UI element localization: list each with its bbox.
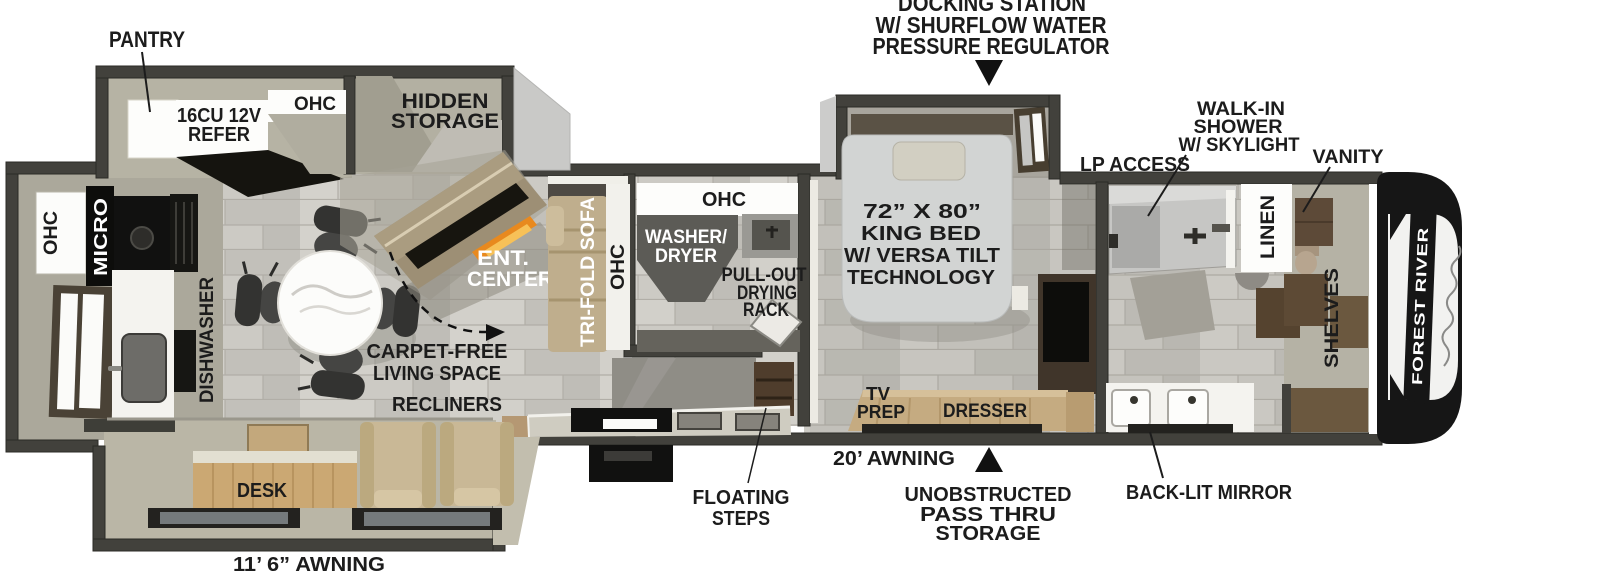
- svg-text:TECHNOLOGY: TECHNOLOGY: [847, 267, 996, 289]
- svg-text:TRI-FOLD SOFA: TRI-FOLD SOFA: [578, 197, 599, 347]
- svg-text:VANITY: VANITY: [1313, 147, 1384, 168]
- svg-text:STORAGE: STORAGE: [391, 110, 499, 133]
- svg-text:KING BED: KING BED: [861, 223, 981, 245]
- svg-text:RECLINERS: RECLINERS: [392, 394, 502, 416]
- svg-text:11’ 6” AWNING: 11’ 6” AWNING: [233, 554, 385, 572]
- svg-text:REFER: REFER: [188, 124, 250, 146]
- svg-text:MICRO: MICRO: [91, 198, 111, 276]
- svg-text:FLOATING: FLOATING: [693, 487, 790, 509]
- svg-text:WASHER/: WASHER/: [645, 227, 728, 248]
- svg-text:BACK-LIT MIRROR: BACK-LIT MIRROR: [1126, 482, 1293, 504]
- svg-text:W/ SKYLIGHT: W/ SKYLIGHT: [1179, 135, 1300, 156]
- svg-text:72” X 80”: 72” X 80”: [863, 201, 981, 223]
- svg-text:UNOBSTRUCTED: UNOBSTRUCTED: [905, 484, 1072, 506]
- svg-text:OHC: OHC: [41, 211, 62, 255]
- svg-text:LINEN: LINEN: [1258, 195, 1279, 259]
- svg-text:LP ACCESS: LP ACCESS: [1080, 154, 1190, 176]
- svg-text:LIVING SPACE: LIVING SPACE: [373, 363, 501, 385]
- svg-text:W/ VERSA TILT: W/ VERSA TILT: [844, 245, 1000, 267]
- svg-text:TV: TV: [866, 384, 890, 404]
- svg-text:OHC: OHC: [702, 189, 746, 211]
- svg-text:OHC: OHC: [294, 94, 336, 115]
- svg-text:DRESSER: DRESSER: [943, 401, 1027, 422]
- svg-text:STORAGE: STORAGE: [936, 523, 1041, 545]
- svg-text:20’ AWNING: 20’ AWNING: [833, 448, 955, 470]
- svg-text:ENT.: ENT.: [477, 247, 529, 270]
- svg-text:DESK: DESK: [237, 480, 287, 502]
- svg-text:OHC: OHC: [608, 244, 629, 290]
- svg-text:CARPET-FREE: CARPET-FREE: [367, 341, 508, 363]
- svg-text:SHELVES: SHELVES: [1322, 268, 1343, 368]
- svg-text:STEPS: STEPS: [712, 508, 770, 530]
- svg-text:PANTRY: PANTRY: [109, 27, 185, 52]
- svg-text:CENTER: CENTER: [467, 268, 553, 291]
- svg-text:RACK: RACK: [743, 300, 789, 321]
- svg-text:PRESSURE REGULATOR: PRESSURE REGULATOR: [873, 33, 1110, 59]
- svg-text:PREP: PREP: [857, 402, 905, 422]
- svg-text:DISHWASHER: DISHWASHER: [197, 277, 218, 403]
- svg-text:DRYER: DRYER: [655, 246, 717, 267]
